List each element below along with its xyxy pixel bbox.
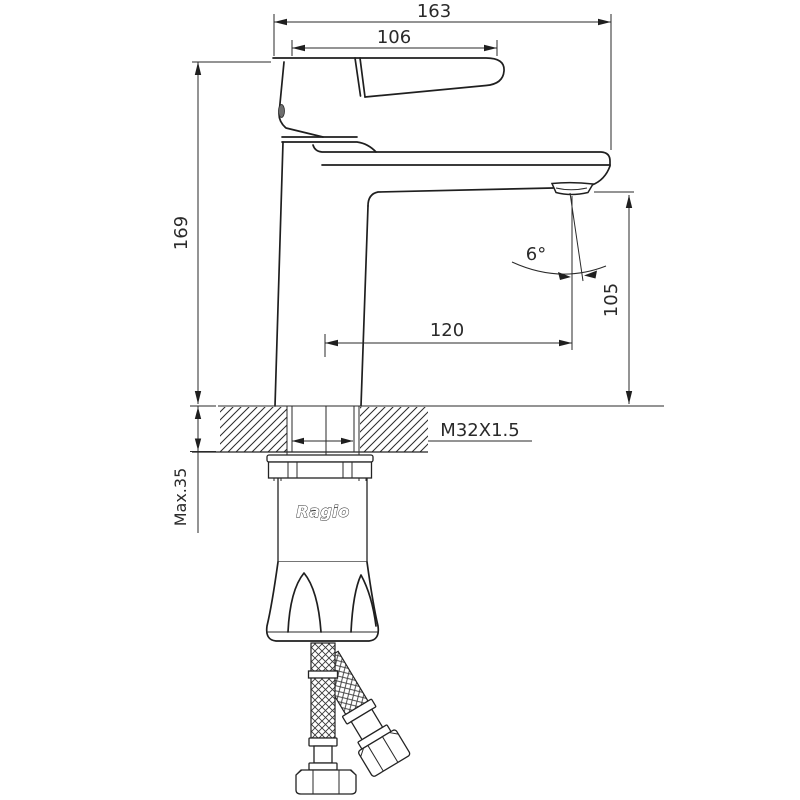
dim-163-label: 163	[417, 1, 451, 22]
dim-handle-length: 106	[292, 27, 497, 56]
dim-106-label: 106	[377, 27, 411, 48]
spout	[313, 145, 610, 206]
faucet-body	[275, 142, 368, 406]
dim-120-label: 120	[430, 320, 464, 341]
dim-body-height: 169	[171, 62, 271, 404]
dim-spout-height: 105	[594, 192, 634, 404]
hose-nut-straight	[296, 770, 356, 794]
drawing-canvas: Ragio 163 106 169 105 120	[0, 0, 800, 800]
countertop-section	[192, 406, 664, 455]
mounting-hardware	[267, 455, 373, 481]
dim-thread-label: M32X1.5	[440, 420, 519, 441]
body-lower: Ragio	[267, 478, 379, 641]
dim-overall-length: 163	[274, 1, 611, 150]
dim-angle-label: 6°	[526, 244, 546, 265]
faucet-dimension-drawing: Ragio 163 106 169 105 120	[0, 0, 800, 800]
handle	[273, 58, 504, 97]
aerator	[552, 183, 593, 195]
brand-logo: Ragio	[296, 502, 350, 521]
dim-max35-label: Max.35	[171, 468, 190, 527]
dim-spout-reach: 120	[325, 320, 572, 357]
handle-pin	[279, 105, 285, 118]
dim-stream-angle: 6°	[512, 193, 606, 350]
dim-105-label: 105	[601, 283, 622, 317]
dim-169-label: 169	[171, 216, 192, 250]
escutcheon	[279, 62, 377, 152]
dim-max-thickness: Max.35	[171, 406, 216, 533]
